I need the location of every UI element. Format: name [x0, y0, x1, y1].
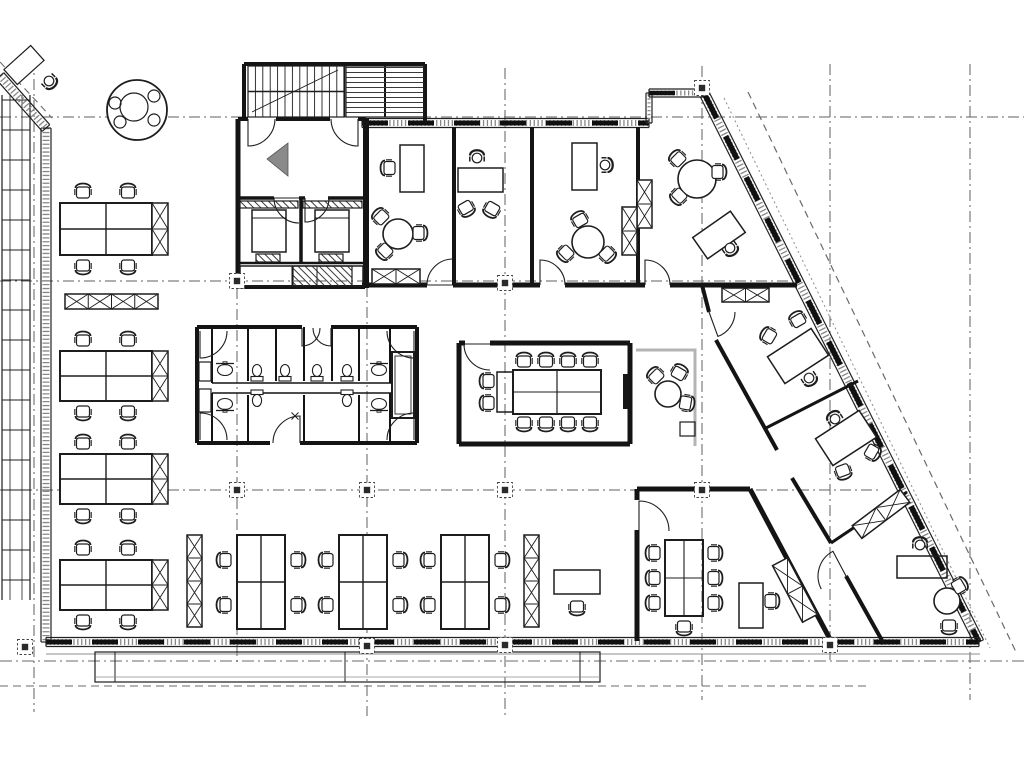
chair: [75, 184, 91, 199]
chair: [393, 597, 408, 613]
chair: [765, 593, 780, 609]
marker: [823, 638, 838, 653]
shower-tray: [395, 356, 411, 414]
chair: [582, 417, 598, 432]
chair: [833, 463, 853, 482]
chair: [393, 552, 408, 568]
chair: [560, 353, 576, 368]
chair: [413, 225, 428, 241]
storage-cabinet: [852, 490, 910, 539]
chair: [217, 597, 232, 613]
desk-cluster: [60, 560, 152, 610]
chair: [708, 570, 723, 586]
wc: [341, 365, 353, 382]
marker: [498, 276, 513, 291]
chair: [560, 417, 576, 432]
staircase: [248, 66, 344, 117]
side-table: [554, 570, 600, 594]
chair: [75, 260, 91, 275]
chair: [319, 597, 334, 613]
booth-bed: [252, 210, 286, 252]
direction-arrow: [267, 143, 288, 176]
storage-cabinet: [637, 180, 652, 228]
marker: [498, 483, 513, 498]
side-table: [680, 422, 695, 436]
chair: [676, 621, 692, 636]
chair: [569, 601, 585, 616]
office-chair: [600, 158, 613, 172]
round-cafe-table: [107, 80, 167, 140]
floor-plan-canvas: [0, 0, 1024, 768]
marker: [360, 639, 375, 654]
utility-box: [199, 362, 211, 381]
chair: [120, 435, 136, 450]
marker: [695, 81, 710, 96]
wc: [251, 390, 263, 407]
chair: [291, 597, 306, 613]
chair: [120, 509, 136, 524]
storage-cabinet: [722, 288, 769, 302]
chair: [421, 597, 436, 613]
desk: [4, 46, 44, 85]
office-chair: [800, 370, 819, 388]
storage-column: [187, 535, 202, 627]
chair: [712, 164, 727, 180]
storage-cabinet: [372, 269, 420, 284]
chair: [538, 353, 554, 368]
door: [248, 119, 275, 146]
chair: [75, 615, 91, 630]
chair: [646, 545, 661, 561]
wc: [311, 365, 323, 382]
terrace: [95, 652, 600, 682]
marker: [360, 483, 375, 498]
chair: [480, 395, 495, 411]
chair: [75, 509, 91, 524]
desk: [458, 168, 503, 192]
chair: [421, 552, 436, 568]
wall: [702, 285, 709, 312]
marker: [695, 483, 710, 498]
storage-column: [524, 535, 539, 627]
chair: [75, 541, 91, 556]
window-wall-nw: [0, 73, 50, 132]
wall-screen: [623, 374, 629, 409]
booth-cabinet: [303, 201, 362, 208]
marker: [230, 483, 245, 498]
storage-cabinet: [622, 207, 637, 255]
storage-cabinet: [772, 558, 817, 622]
chair: [481, 200, 502, 221]
window-wall-left: [41, 128, 51, 642]
chair: [787, 309, 808, 330]
chair: [75, 332, 91, 347]
booth-cabinet: [240, 201, 298, 208]
chair: [381, 160, 396, 176]
desk-cluster: [60, 454, 152, 504]
desk-cluster: [60, 203, 152, 255]
desk: [572, 143, 597, 190]
sink: [370, 399, 388, 413]
door: [273, 416, 300, 443]
chair: [582, 353, 598, 368]
floor-plan: [0, 0, 1024, 768]
storage-cabinet: [152, 351, 168, 401]
sink: [216, 362, 234, 376]
desk-cluster: [339, 535, 387, 629]
chair: [319, 552, 334, 568]
chair: [495, 597, 510, 613]
chair: [758, 325, 779, 346]
chair: [120, 260, 136, 275]
storage-row: [65, 294, 158, 309]
chair: [480, 373, 495, 389]
chair: [120, 615, 136, 630]
door: [709, 312, 735, 336]
office-chair: [41, 73, 60, 92]
storage-cabinet: [152, 203, 168, 255]
chair: [646, 595, 661, 611]
desk: [767, 328, 828, 383]
desk: [400, 145, 424, 192]
footstool: [256, 254, 280, 262]
chair: [679, 394, 696, 413]
wall: [846, 576, 884, 644]
footstool: [319, 254, 343, 262]
chair: [291, 552, 306, 568]
door: [331, 119, 358, 146]
door: [639, 501, 669, 531]
utility-box: [199, 389, 211, 412]
chair: [669, 362, 690, 383]
marker: [498, 638, 513, 653]
window-wall-diagonal: [701, 93, 984, 644]
chair: [456, 199, 477, 220]
storage-cabinet: [152, 560, 168, 610]
chair: [646, 570, 661, 586]
chair: [120, 184, 136, 199]
door: [464, 344, 490, 370]
chair: [120, 406, 136, 421]
facade-walkway: [2, 95, 30, 600]
marker: [230, 274, 245, 289]
sink: [216, 399, 234, 413]
door: [313, 328, 331, 346]
chair: [75, 406, 91, 421]
site-line-dotted: [724, 98, 990, 648]
chair: [75, 435, 91, 450]
chair: [120, 332, 136, 347]
wall: [792, 478, 831, 543]
chair: [941, 620, 957, 635]
desk-cluster: [237, 535, 285, 629]
desk-cluster: [441, 535, 489, 629]
office-chair: [470, 150, 484, 163]
marker: [18, 640, 33, 655]
desk: [739, 583, 763, 628]
wc: [279, 365, 291, 382]
door: [200, 413, 227, 440]
wc: [251, 365, 263, 382]
storage-cabinet: [152, 454, 168, 504]
chair: [516, 353, 532, 368]
chair: [516, 417, 532, 432]
wardrobe-hatch: [293, 266, 352, 286]
round-table: [655, 381, 681, 407]
chair: [538, 417, 554, 432]
chair: [217, 552, 232, 568]
sink: [370, 362, 388, 376]
shaft: [346, 66, 424, 117]
desk-cluster: [60, 351, 152, 401]
door: [818, 551, 846, 589]
chair: [495, 552, 510, 568]
chair: [708, 545, 723, 561]
chair: [120, 541, 136, 556]
door: [200, 331, 227, 358]
chair: [708, 595, 723, 611]
wc: [341, 390, 353, 407]
office-chair: [913, 537, 927, 550]
